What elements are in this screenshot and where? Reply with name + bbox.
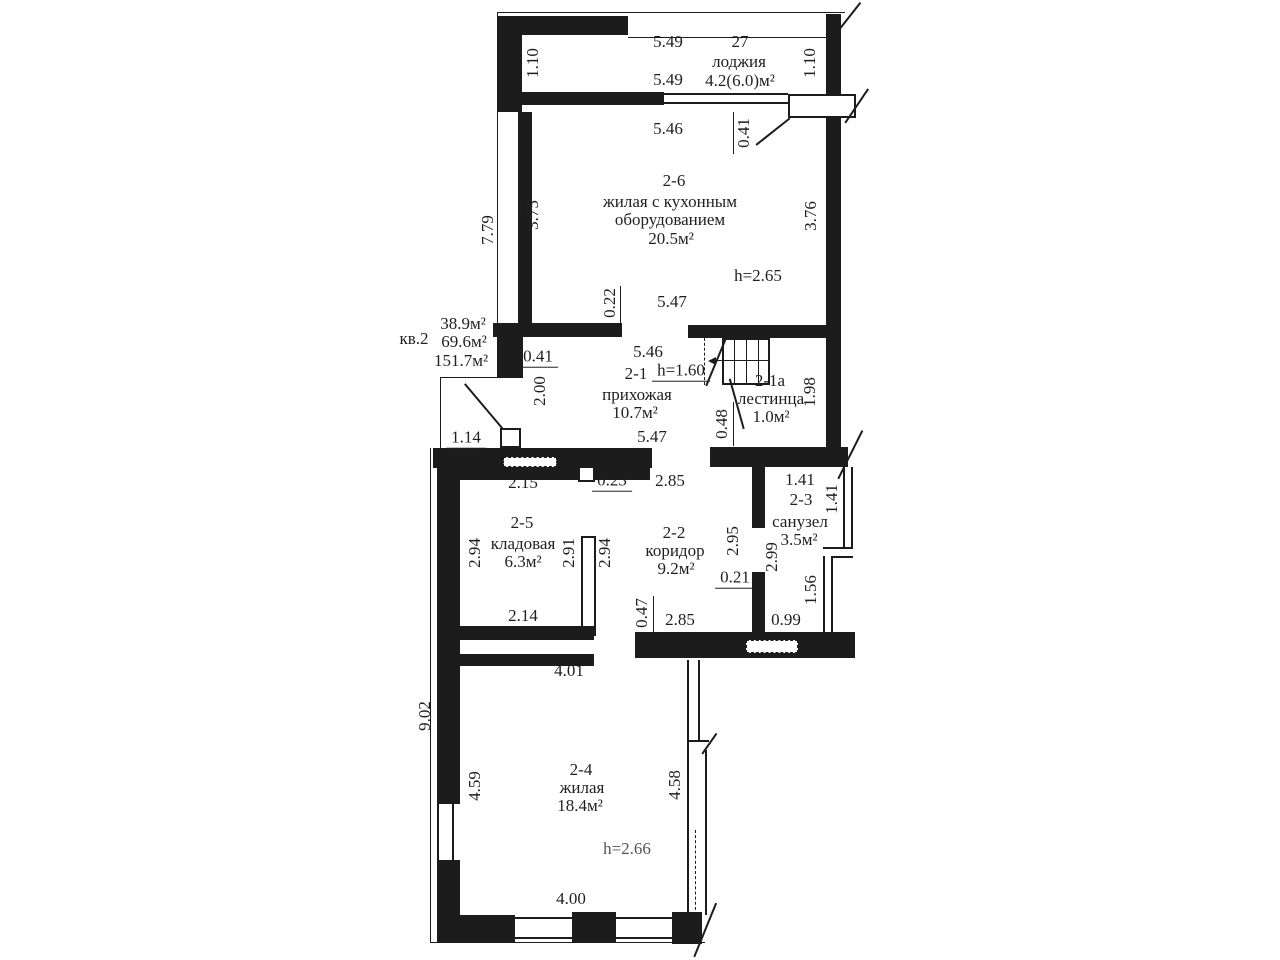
room-2-2-number: 2-2 xyxy=(663,523,686,543)
wall-2-3-right-lower xyxy=(823,556,833,634)
lintel-2-5 xyxy=(503,457,557,467)
wall-loggia-bottom xyxy=(518,92,664,105)
dim-r25-top: 2.15 xyxy=(508,473,538,493)
dim-left-step: 1.14 xyxy=(446,428,486,449)
dim-r25-right: 2.94 xyxy=(595,538,615,568)
dim-left-height-lower: 9.02 xyxy=(415,701,435,731)
apartment-label: кв.2 xyxy=(399,329,428,349)
room-2-1-name: прихожая xyxy=(602,385,672,405)
dim-r26-top-width: 5.46 xyxy=(653,119,683,139)
dim-r22-top: 2.85 xyxy=(655,471,685,491)
dim-r25-bottom: 2.14 xyxy=(508,606,538,626)
dim-r24-right: 4.58 xyxy=(665,770,685,800)
apartment-area-2: 69.6м² xyxy=(441,332,487,352)
wall-2-3-stub-upper xyxy=(752,467,765,528)
dim-loggia-depth-left: 1.10 xyxy=(523,48,543,78)
dim-hall-bottom-width: 5.47 xyxy=(637,427,667,447)
room-2-1-number: 2-1 xyxy=(625,364,648,384)
dim-r25-door: 0.23 xyxy=(592,471,632,492)
line-hall-side xyxy=(440,377,441,448)
dim-r24-bottom: 4.00 xyxy=(556,889,586,909)
dim-kv-wall: 0.41 xyxy=(518,347,558,368)
pier-hall xyxy=(500,428,521,448)
window-2-4-left xyxy=(437,804,454,860)
leader-048 xyxy=(733,402,734,446)
room-2-2-area: 9.2м² xyxy=(657,559,694,579)
line-left-outer xyxy=(430,448,431,943)
room-2-4-area: 18.4м² xyxy=(557,796,603,816)
wall-2-5-right-stub xyxy=(581,536,596,636)
wall-mid-slab-right xyxy=(710,447,848,467)
dim-r22-bottom: 2.85 xyxy=(665,610,695,630)
loggia-name: лоджия xyxy=(712,52,766,72)
loggia-area: 4.2(6.0)м² xyxy=(705,71,775,91)
room-2-1a-area: 1.0м² xyxy=(752,407,789,427)
floor-plan: 5.49 27 лоджия 5.49 4.2(6.0)м² 1.10 1.10… xyxy=(0,0,1280,960)
wall-2-6-bottom-right xyxy=(688,325,826,338)
room-2-6-number: 2-6 xyxy=(663,171,686,191)
dim-r24-top: 4.01 xyxy=(554,661,584,681)
wall-loggia-top-bar xyxy=(518,16,628,35)
pointer-balcony-slab xyxy=(756,117,791,145)
room-2-1a-name: лестинца xyxy=(738,389,804,409)
stair-tread-line-2 xyxy=(746,338,747,385)
wall-left-exterior xyxy=(437,448,460,804)
dim-stair-offset: 0.48 xyxy=(712,409,732,439)
room-2-1-height: h=1.60 xyxy=(652,361,710,382)
room-2-6-name-1: жилая с кухонным xyxy=(603,192,737,212)
room-2-1-area: 10.7м² xyxy=(612,403,658,423)
balcony-slab xyxy=(788,94,856,118)
line-bottom-outer xyxy=(430,942,705,943)
room-2-4-number: 2-4 xyxy=(570,760,593,780)
loggia-number: 27 xyxy=(732,32,749,52)
dim-stair-height: 1.98 xyxy=(800,377,820,407)
room-2-3-name: санузел xyxy=(772,512,828,532)
dim-hall-offset: 2.00 xyxy=(530,376,550,406)
wall-2-6-bottom-left xyxy=(493,323,622,337)
dim-r22-offset: 0.47 xyxy=(632,598,652,628)
line-hall-diagonal xyxy=(464,383,503,429)
room-2-6-height: h=2.65 xyxy=(734,266,782,286)
room-2-4-height: h=2.66 xyxy=(603,839,651,859)
dim-r26-bottom-width: 5.47 xyxy=(657,292,687,312)
window-loggia xyxy=(664,93,788,104)
dim-r23-lower: 1.56 xyxy=(801,575,821,605)
room-2-6-area: 20.5м² xyxy=(648,229,694,249)
wall-2-4-corner-h xyxy=(437,915,515,942)
window-2-4-bottom-b xyxy=(616,917,672,939)
wall-2-4-right-line-c xyxy=(705,750,707,915)
apartment-area-3: 151.7м² xyxy=(434,351,488,371)
dim-r25-left: 2.94 xyxy=(465,538,485,568)
dim-r23-right: 1.41 xyxy=(822,484,842,514)
dim-left-height-upper: 7.79 xyxy=(478,215,498,245)
room-2-1a-number: 2-1а xyxy=(755,371,785,391)
dim-r26-wall-stub: 0.22 xyxy=(600,288,620,318)
stair-tread-line-1 xyxy=(734,338,735,385)
dim-r26-wall-offset: 0.41 xyxy=(734,118,754,148)
stair-mid-line xyxy=(714,360,770,361)
apartment-area-1: 38.9м² xyxy=(440,314,486,334)
leader-047 xyxy=(653,596,654,632)
room-2-3-number: 2-3 xyxy=(790,490,813,510)
line-hall-top xyxy=(440,377,500,378)
dim-r22-stub: 0.21 xyxy=(715,568,755,589)
wall-right-main xyxy=(826,14,841,447)
wall-2-5-bottom xyxy=(460,626,594,640)
leader-022 xyxy=(620,286,621,330)
dim-hall-top-width: 5.46 xyxy=(633,342,663,362)
wall-2-3-right-upper xyxy=(843,467,853,549)
wall-bottom-slab xyxy=(635,632,855,658)
room-2-2-name: коридор xyxy=(645,541,704,561)
dim-r26-right: 3.76 xyxy=(801,201,821,231)
dim-top-width-a: 5.49 xyxy=(653,32,683,52)
wall-2-4-right-line-a xyxy=(687,660,689,915)
wall-2-4-end-pier xyxy=(672,912,702,944)
dim-r22-niche: 0.99 xyxy=(771,610,801,630)
wall-loggia-top-line xyxy=(498,12,845,13)
room-2-3-area: 3.5м² xyxy=(780,530,817,550)
dim-r23-top: 1.41 xyxy=(785,470,815,490)
dim-r24-left: 4.59 xyxy=(465,771,485,801)
room-2-6-name-2: оборудованием xyxy=(615,210,725,230)
wall-2-4-right-tick xyxy=(687,740,709,742)
wall-2-4-right-jog xyxy=(701,733,717,754)
window-2-4-bottom-a xyxy=(515,917,572,939)
wall-2-4-right-dashline xyxy=(695,830,696,915)
wall-2-4-right-line-b xyxy=(698,660,700,742)
room-2-5-number: 2-5 xyxy=(511,513,534,533)
dim-r22-right: 2.99 xyxy=(762,542,782,572)
wall-2-4-pier xyxy=(572,912,616,942)
room-2-5-name: кладовая xyxy=(491,534,556,554)
dim-r22-left: 2.95 xyxy=(723,526,743,556)
dim-r26-left: 3.75 xyxy=(523,200,543,230)
dim-loggia-depth-right: 1.10 xyxy=(800,48,820,78)
room-2-5-area: 6.3м² xyxy=(504,552,541,572)
opening-bottom-slab xyxy=(746,640,798,653)
room-2-4-name: жилая xyxy=(560,778,605,798)
dim-top-width-b: 5.49 xyxy=(653,70,683,90)
dim-r25-inner: 2.91 xyxy=(559,538,579,568)
